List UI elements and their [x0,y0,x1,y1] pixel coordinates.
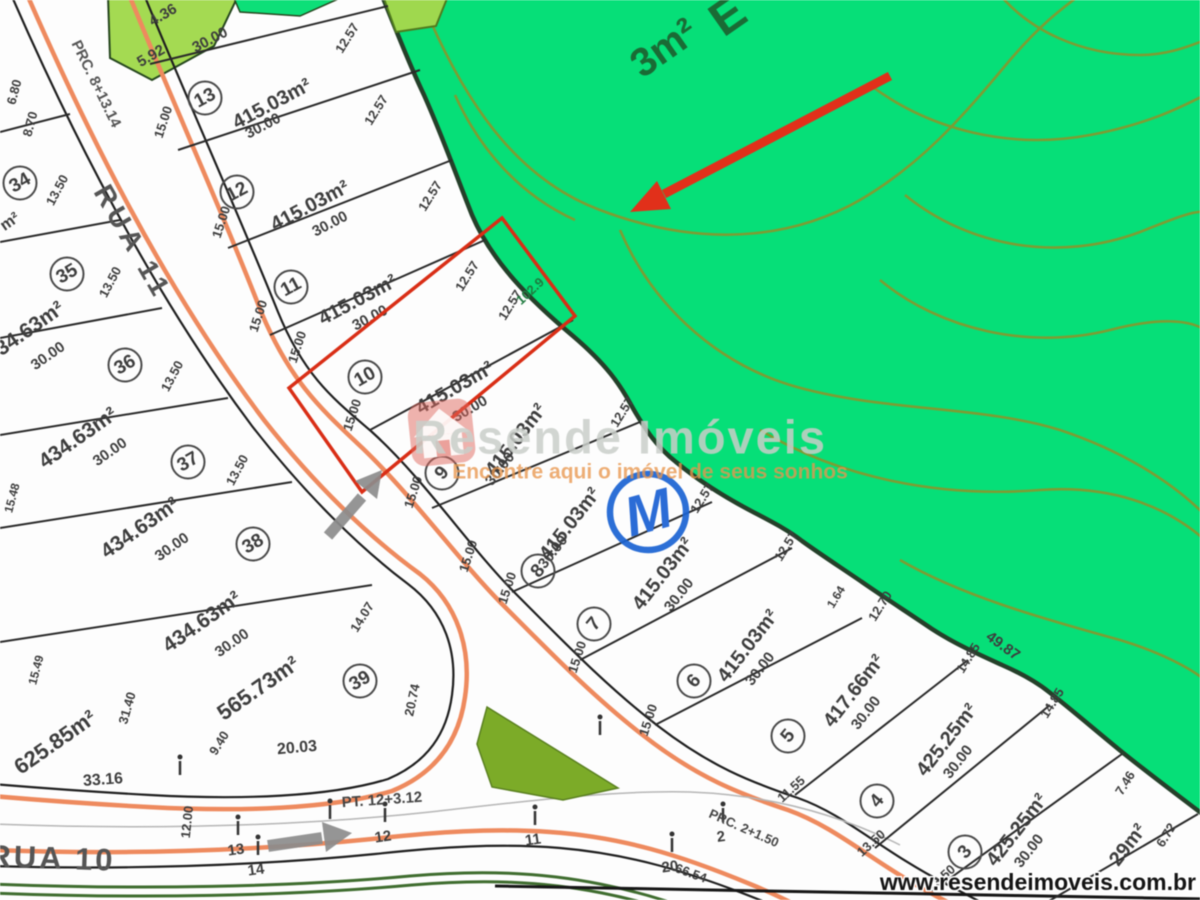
lot-number: 3 [954,841,977,863]
dimension-label: 12.57 [361,92,391,128]
watermark-tagline: Encontre aqui o imóvel de seus sonhos [452,461,848,484]
lot-number: 5 [777,725,800,747]
dimension-label: 12.57 [332,20,362,56]
station-number: 13 [227,840,246,859]
lot-3: 3425.25m² [949,789,1053,870]
traffic-island [477,707,618,800]
lot-8: 8415.03m² [522,483,606,587]
dimension-label: 15.00 [636,702,660,738]
dimension-label: 1.64 [824,583,848,611]
lot-number: 12 [223,178,252,206]
station-number: 14 [247,860,267,879]
dimension-label: 13.50 [223,452,252,488]
lot-number: 13 [191,84,220,112]
station-tick: 14 [247,835,267,880]
station-number: 2 [716,828,727,846]
lot-number: 38 [239,530,268,559]
watermark: Resende Imóveis Encontre aqui o imóvel d… [406,397,847,483]
website-url: www.resendeimoveis.com.br [879,869,1196,895]
watermark-brand: Resende Imóveis [413,411,827,464]
dimension-label: 12.57 [452,258,482,294]
dimension-label: 7.46 [1112,768,1138,797]
dimension-label: 33.16 [82,770,123,790]
station-number: 20 [661,857,680,876]
lot-36: 36434.63m² [35,349,142,474]
gray-arrow-east [268,822,352,852]
dimension-label: 12.00 [178,805,196,839]
dimension-label: 15.48 [1,481,22,514]
lot-area-label: 565.73m² [212,651,303,726]
dimension-label: 15.49 [25,653,46,686]
dimension-label: 30.00 [28,338,69,373]
lot-number: 39 [346,667,375,696]
dimension-label: 6.72 [1153,820,1179,849]
lot-number: 9 [431,462,454,484]
dimension-label: 14.07 [347,599,377,635]
station-label-pt12: PT. 12+3.12 [341,789,422,812]
lot-34: 34 [4,167,37,200]
lot-area-label: 415.03m² [535,483,605,564]
dimension-label: 15.00 [401,474,425,510]
dimension-label: 30.00 [212,625,253,660]
dimension-label: 13.50 [96,264,125,300]
lot-13: 13415.03m² [189,74,316,134]
dimension-label: 13.50 [158,358,187,394]
lot-number: 11 [277,273,305,301]
monument-letter: M [617,475,680,548]
lot-number: 35 [53,259,82,288]
monument-marker: M [610,474,686,550]
station-number: 11 [524,830,542,849]
dimension-label: 31.40 [115,690,138,725]
lot-number: 37 [174,448,203,477]
lot-number: 6 [683,670,706,692]
dimension-label: 12.57 [687,480,717,516]
dimension-label: 9.40 [206,728,232,757]
area-label: m² [0,209,23,234]
dimension-label: 15.00 [456,538,480,574]
dimension-label: 30.00 [90,434,131,469]
station-tick [598,715,603,736]
lot-number: 10 [351,363,380,392]
dimension-label: 20.74 [401,682,423,718]
dimension-label: 6.80 [3,78,24,106]
station-number: 12 [374,827,393,846]
dimension-label: 12.57 [771,528,801,564]
dimension-label: 15.00 [151,104,175,140]
area-label: 625.85m² [9,705,100,780]
dimension-label: 20.03 [276,738,317,758]
dimension-label: 12.57 [415,178,445,214]
street-name-rua10: RUA 10 [0,838,116,877]
lot-number: 34 [6,168,35,197]
station-tick [328,799,333,820]
lot-number: 36 [111,351,140,380]
dimension-label: 30.00 [152,529,193,564]
lot-39: 39565.73m² [212,651,376,726]
plat-map-image: 15.0015.0015.0015.0015.0015.0015.0015.00… [0,0,1200,900]
lot-number: 4 [866,790,889,812]
station-tick [178,755,183,776]
dimension-label: 8.70 [19,110,40,138]
dimension-label: 13.50 [43,172,72,208]
station-tick: 11 [524,805,542,850]
green-sliver-top [233,0,345,16]
dimension-label: 15.00 [340,397,364,433]
dimension-label: 12.70 [865,588,895,624]
station-tick: 13 [227,815,246,860]
lot-number: 7 [583,613,606,635]
